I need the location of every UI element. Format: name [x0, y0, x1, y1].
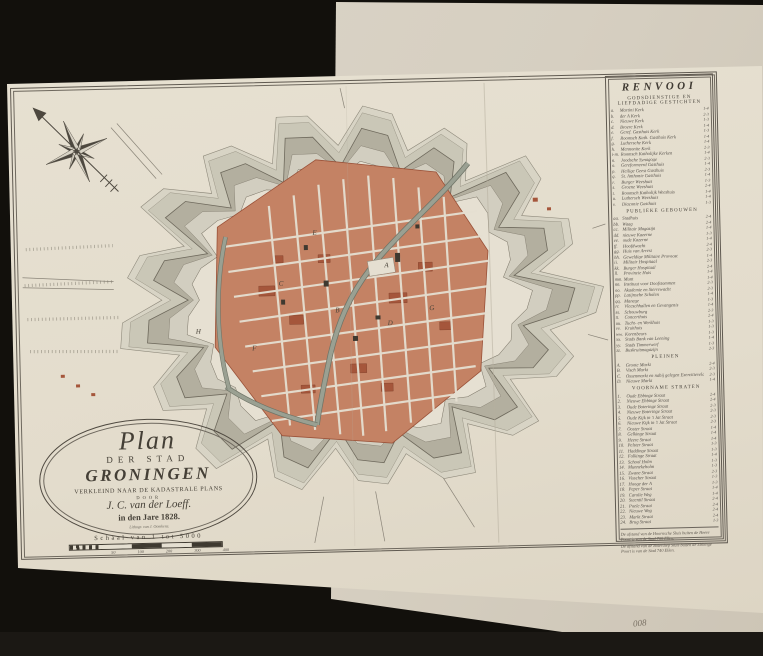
legend-note: De afstand van de Hoornsche Sluis buiten… — [621, 529, 719, 542]
scale-tick-label: 200 — [144, 548, 173, 554]
legend-rows: 1. Oude Ebbinge Straat 2-4 2. Nieuwe Ebb… — [617, 391, 718, 525]
scale-tick-label: 50 — [87, 549, 116, 555]
archive-label-handwritten: 008 — [633, 617, 647, 628]
scale-tick-label: 100 — [115, 548, 144, 554]
scale-tick-label: 400 — [200, 546, 229, 552]
district-letter: E — [311, 229, 317, 237]
map-sheet: A B C D E F G H — [0, 0, 763, 656]
legend-rows: aa. Stadhuis 2-4 bb. Waag 2-4 cc. Milita… — [613, 214, 714, 354]
legend-section-streets: VOORNAME STRATEN 1. Oude Ebbinge Straat … — [617, 384, 718, 525]
legend-row-key: zz. — [616, 348, 625, 354]
legend-row-name: Brug Straat — [629, 518, 707, 525]
cartouche-inner-ring — [42, 420, 255, 537]
legend-notes: De afstand van de Hoornsche Sluis buiten… — [621, 526, 720, 554]
legend-row: 24. Brug Straat 1-3 — [620, 517, 718, 525]
legend-row-gridref: 1-3 — [707, 517, 718, 523]
legend-panel: RENVOOI GODSDIENSTIGE EN LIEFDADIGE GEST… — [605, 73, 724, 541]
scale-segment — [162, 543, 192, 547]
legend-row-gridref: 1-4 — [704, 376, 715, 382]
legend-row: D. Nieuwe Markt 1-4 — [617, 376, 715, 384]
legend-section-religious: GODSDIENSTIGE EN LIEFDADIGE GESTICHTEN a… — [610, 94, 711, 207]
district-letter: A — [383, 261, 389, 269]
district-letter: C — [279, 280, 284, 288]
legend-row-key: v. — [613, 201, 622, 207]
legend-section-public-buildings: PUBLIEKE GEBOUWEN aa. Stadhuis 2-4 bb. W… — [613, 207, 714, 353]
legend-row-gridref: 2-3 — [703, 345, 714, 351]
legend-row-key: D. — [617, 379, 626, 385]
legend-row: v. Diaconie Gasthuis 1-3 — [613, 199, 711, 207]
district-letter: D — [387, 319, 393, 327]
scale-segment — [132, 544, 162, 548]
printed-map-area: A B C D E F G H — [10, 71, 728, 560]
scan-background: P670459 008 — [0, 0, 763, 656]
legend-section-squares: PLEINEN A. Groote Markt 2-4 B. Visch Mar… — [616, 353, 715, 384]
legend-row-key: 24. — [620, 520, 629, 526]
legend-rows: a. Martini Kerk 1-4 b. der A Kerk 2-3 c.… — [611, 106, 711, 207]
legend-row-name: Diaconie Gasthuis — [622, 199, 700, 206]
district-letter: F — [251, 344, 257, 352]
scale-segment — [192, 542, 222, 546]
legend-row-name: Buskruitmagazijn — [625, 346, 703, 353]
scale-segment — [102, 544, 132, 548]
compass-rose-icon — [28, 101, 126, 199]
district-letter: H — [195, 328, 202, 336]
tree-lined-canals — [24, 246, 120, 354]
legend-row-name: Nieuwe Markt — [626, 377, 704, 384]
legend-note: De afstand van de Boterdiep Sluis buiten… — [621, 541, 719, 554]
scan-bottom-strip — [0, 632, 763, 656]
legend-title: RENVOOI — [610, 80, 708, 94]
archive-label: P670459 008 — [627, 613, 647, 631]
legend-row-gridref: 1-3 — [700, 199, 711, 205]
scale-tick-label: 300 — [172, 547, 201, 553]
scale-block: Schaal van 1 tot 5000 50 100 200 300 400 — [69, 532, 229, 555]
legend-row: zz. Buskruitmagazijn 2-3 — [616, 345, 714, 353]
district-letter: G — [429, 304, 434, 312]
north-arrow — [33, 106, 118, 193]
legend-rows: A. Groote Markt 2-4 B. Visch Markt 2-3 C… — [617, 360, 715, 384]
